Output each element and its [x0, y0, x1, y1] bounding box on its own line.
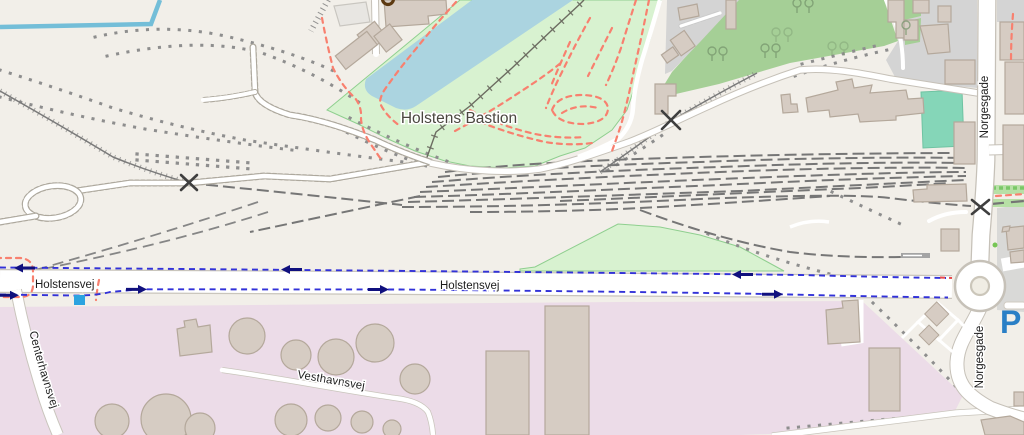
svg-text:Norgesgade: Norgesgade: [979, 76, 991, 139]
svg-text:Holstensvej: Holstensvej: [35, 279, 94, 291]
svg-text:Norgesgade: Norgesgade: [974, 326, 986, 389]
svg-text:Holstens Bastion: Holstens Bastion: [401, 110, 517, 127]
svg-text:Holstensvej: Holstensvej: [440, 280, 499, 292]
svg-text:P: P: [1000, 304, 1021, 340]
